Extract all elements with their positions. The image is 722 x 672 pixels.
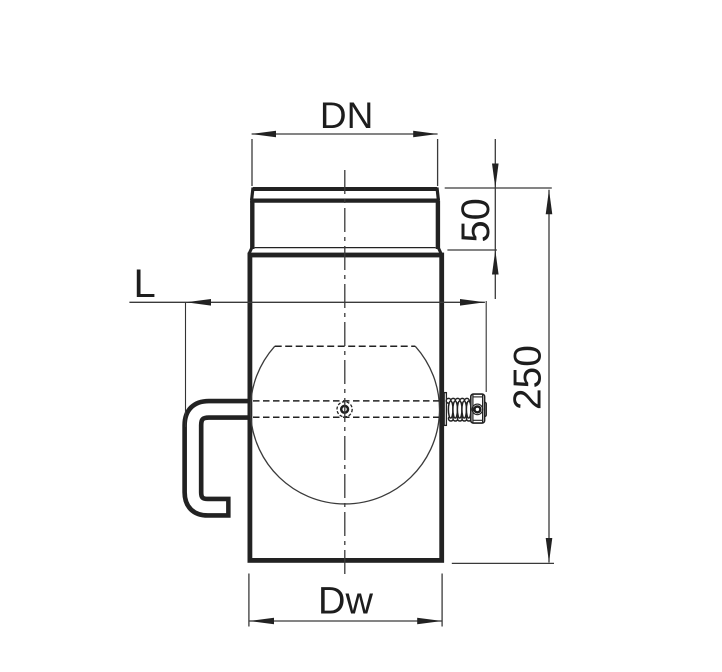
svg-text:DN: DN bbox=[320, 95, 373, 136]
svg-text:250: 250 bbox=[507, 345, 550, 410]
svg-text:50: 50 bbox=[454, 198, 498, 243]
svg-text:L: L bbox=[134, 262, 156, 306]
svg-text:Dw: Dw bbox=[318, 581, 373, 623]
